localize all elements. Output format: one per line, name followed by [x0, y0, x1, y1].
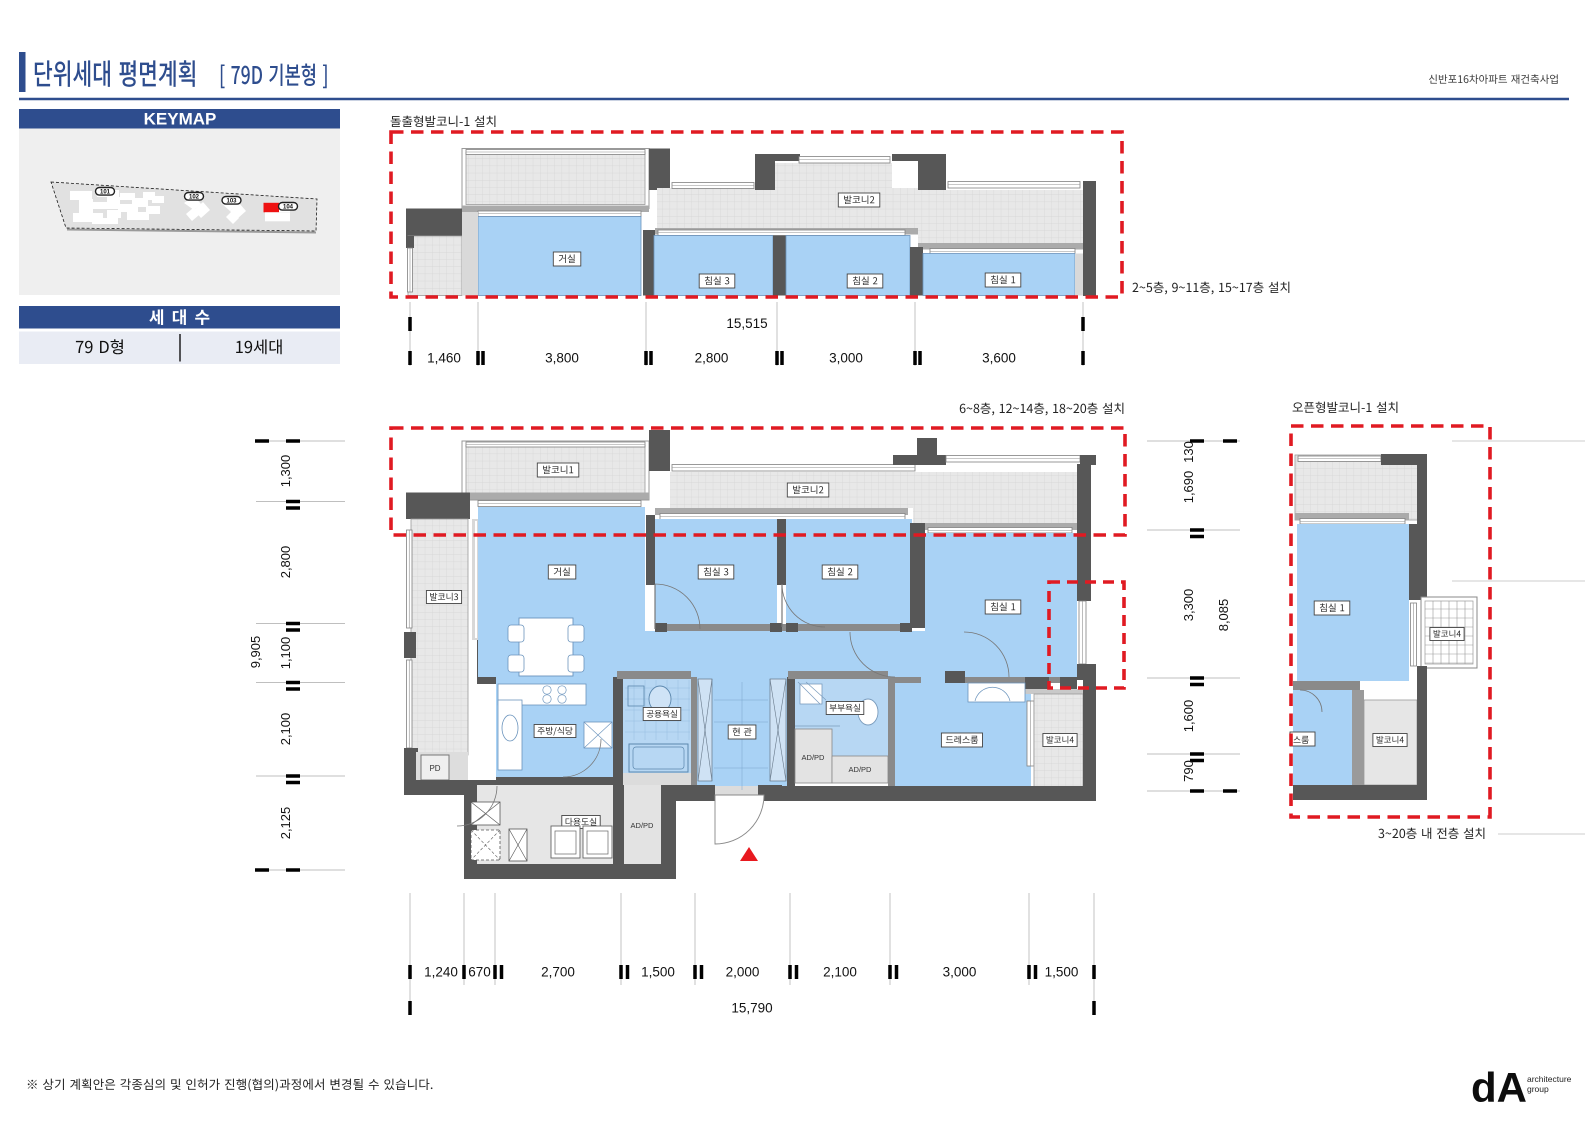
svg-text:PD: PD	[429, 764, 440, 773]
svg-text:102: 102	[189, 194, 200, 200]
svg-text:2,800: 2,800	[278, 546, 293, 579]
svg-text:670: 670	[468, 965, 491, 980]
svg-text:1,690: 1,690	[1181, 471, 1196, 504]
svg-text:130: 130	[1181, 441, 1196, 463]
svg-text:AD/PD: AD/PD	[631, 821, 655, 830]
svg-text:103: 103	[226, 198, 237, 204]
svg-text:AD/PD: AD/PD	[849, 765, 873, 774]
svg-text:1,300: 1,300	[278, 455, 293, 488]
svg-text:3,000: 3,000	[943, 965, 977, 980]
svg-text:1,240: 1,240	[424, 965, 458, 980]
svg-text:architecture: architecture	[1527, 1074, 1572, 1084]
svg-text:15,790: 15,790	[731, 1001, 772, 1016]
svg-text:9,905: 9,905	[248, 636, 263, 669]
svg-text:1,460: 1,460	[427, 351, 461, 366]
svg-text:1,600: 1,600	[1181, 700, 1196, 733]
svg-text:3,300: 3,300	[1181, 589, 1196, 622]
svg-text:2,000: 2,000	[726, 965, 760, 980]
svg-text:8,085: 8,085	[1216, 599, 1231, 632]
svg-text:101: 101	[100, 189, 111, 195]
svg-text:3,800: 3,800	[545, 351, 579, 366]
svg-text:2,125: 2,125	[278, 807, 293, 840]
svg-text:3,600: 3,600	[982, 351, 1016, 366]
svg-text:2,100: 2,100	[278, 713, 293, 746]
svg-text:790: 790	[1181, 760, 1196, 782]
svg-text:104: 104	[283, 204, 294, 210]
svg-text:2,700: 2,700	[541, 965, 575, 980]
svg-text:1,500: 1,500	[641, 965, 675, 980]
svg-text:3,000: 3,000	[829, 351, 863, 366]
svg-text:2,100: 2,100	[823, 965, 857, 980]
svg-text:AD/PD: AD/PD	[802, 753, 826, 762]
svg-text:1,500: 1,500	[1045, 965, 1079, 980]
svg-text:1,100: 1,100	[278, 637, 293, 670]
svg-text:2,800: 2,800	[695, 351, 729, 366]
svg-text:dA: dA	[1471, 1064, 1527, 1111]
svg-text:15,515: 15,515	[726, 316, 767, 331]
svg-text:group: group	[1527, 1084, 1549, 1094]
svg-text:KEYMAP: KEYMAP	[144, 110, 217, 129]
